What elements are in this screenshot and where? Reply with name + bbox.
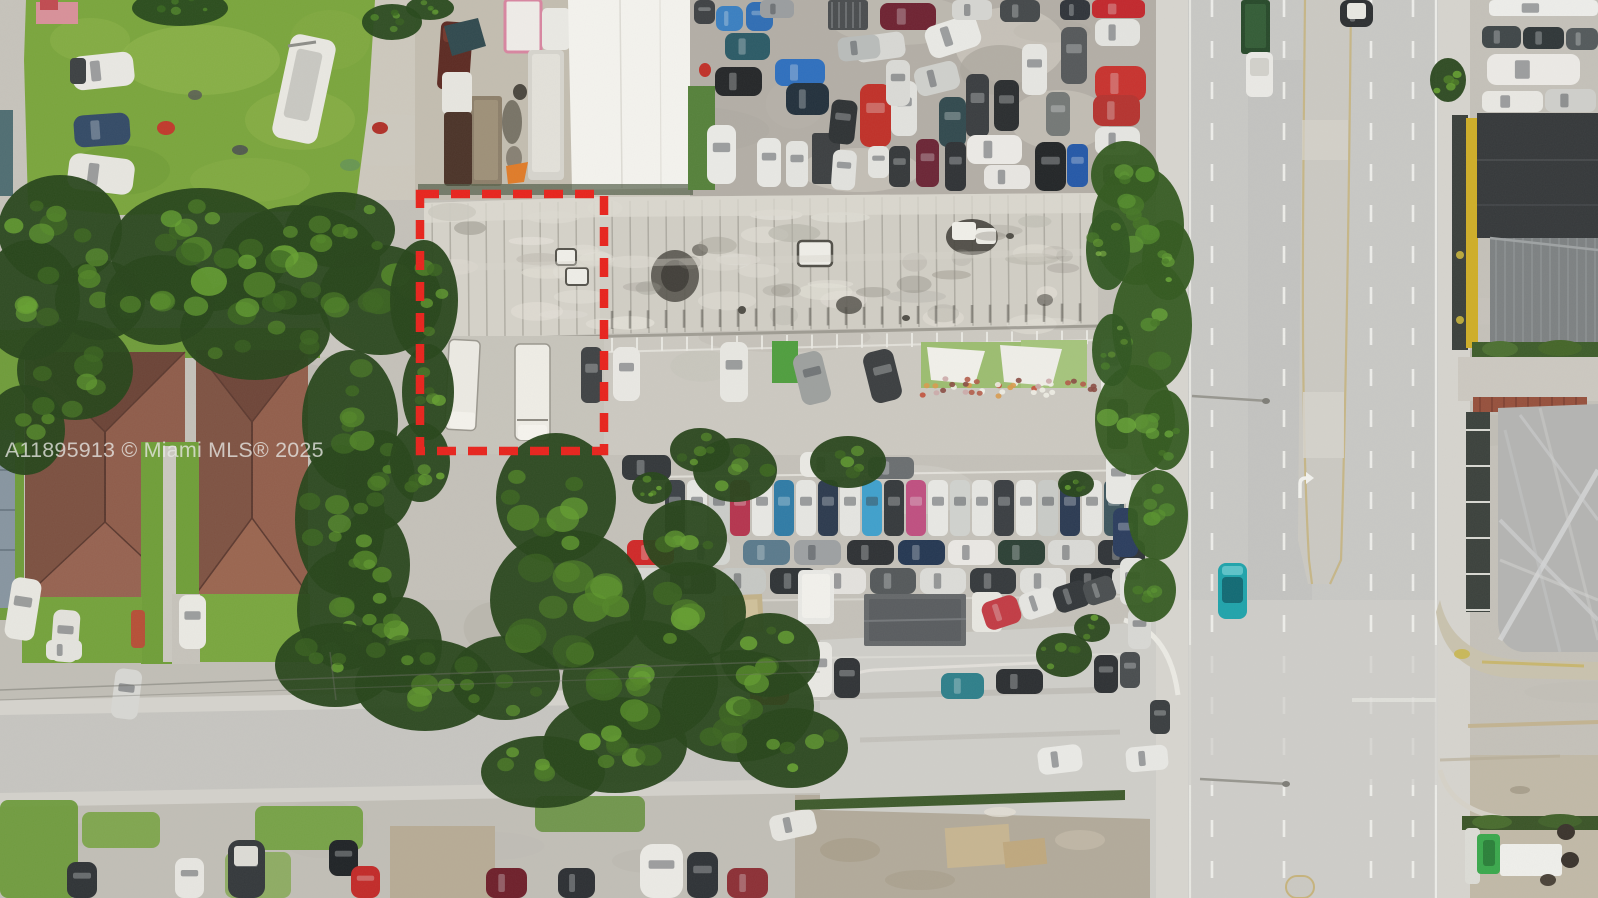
svg-text:A11895913 © Miami MLS® 2025: A11895913 © Miami MLS® 2025 (5, 438, 324, 462)
